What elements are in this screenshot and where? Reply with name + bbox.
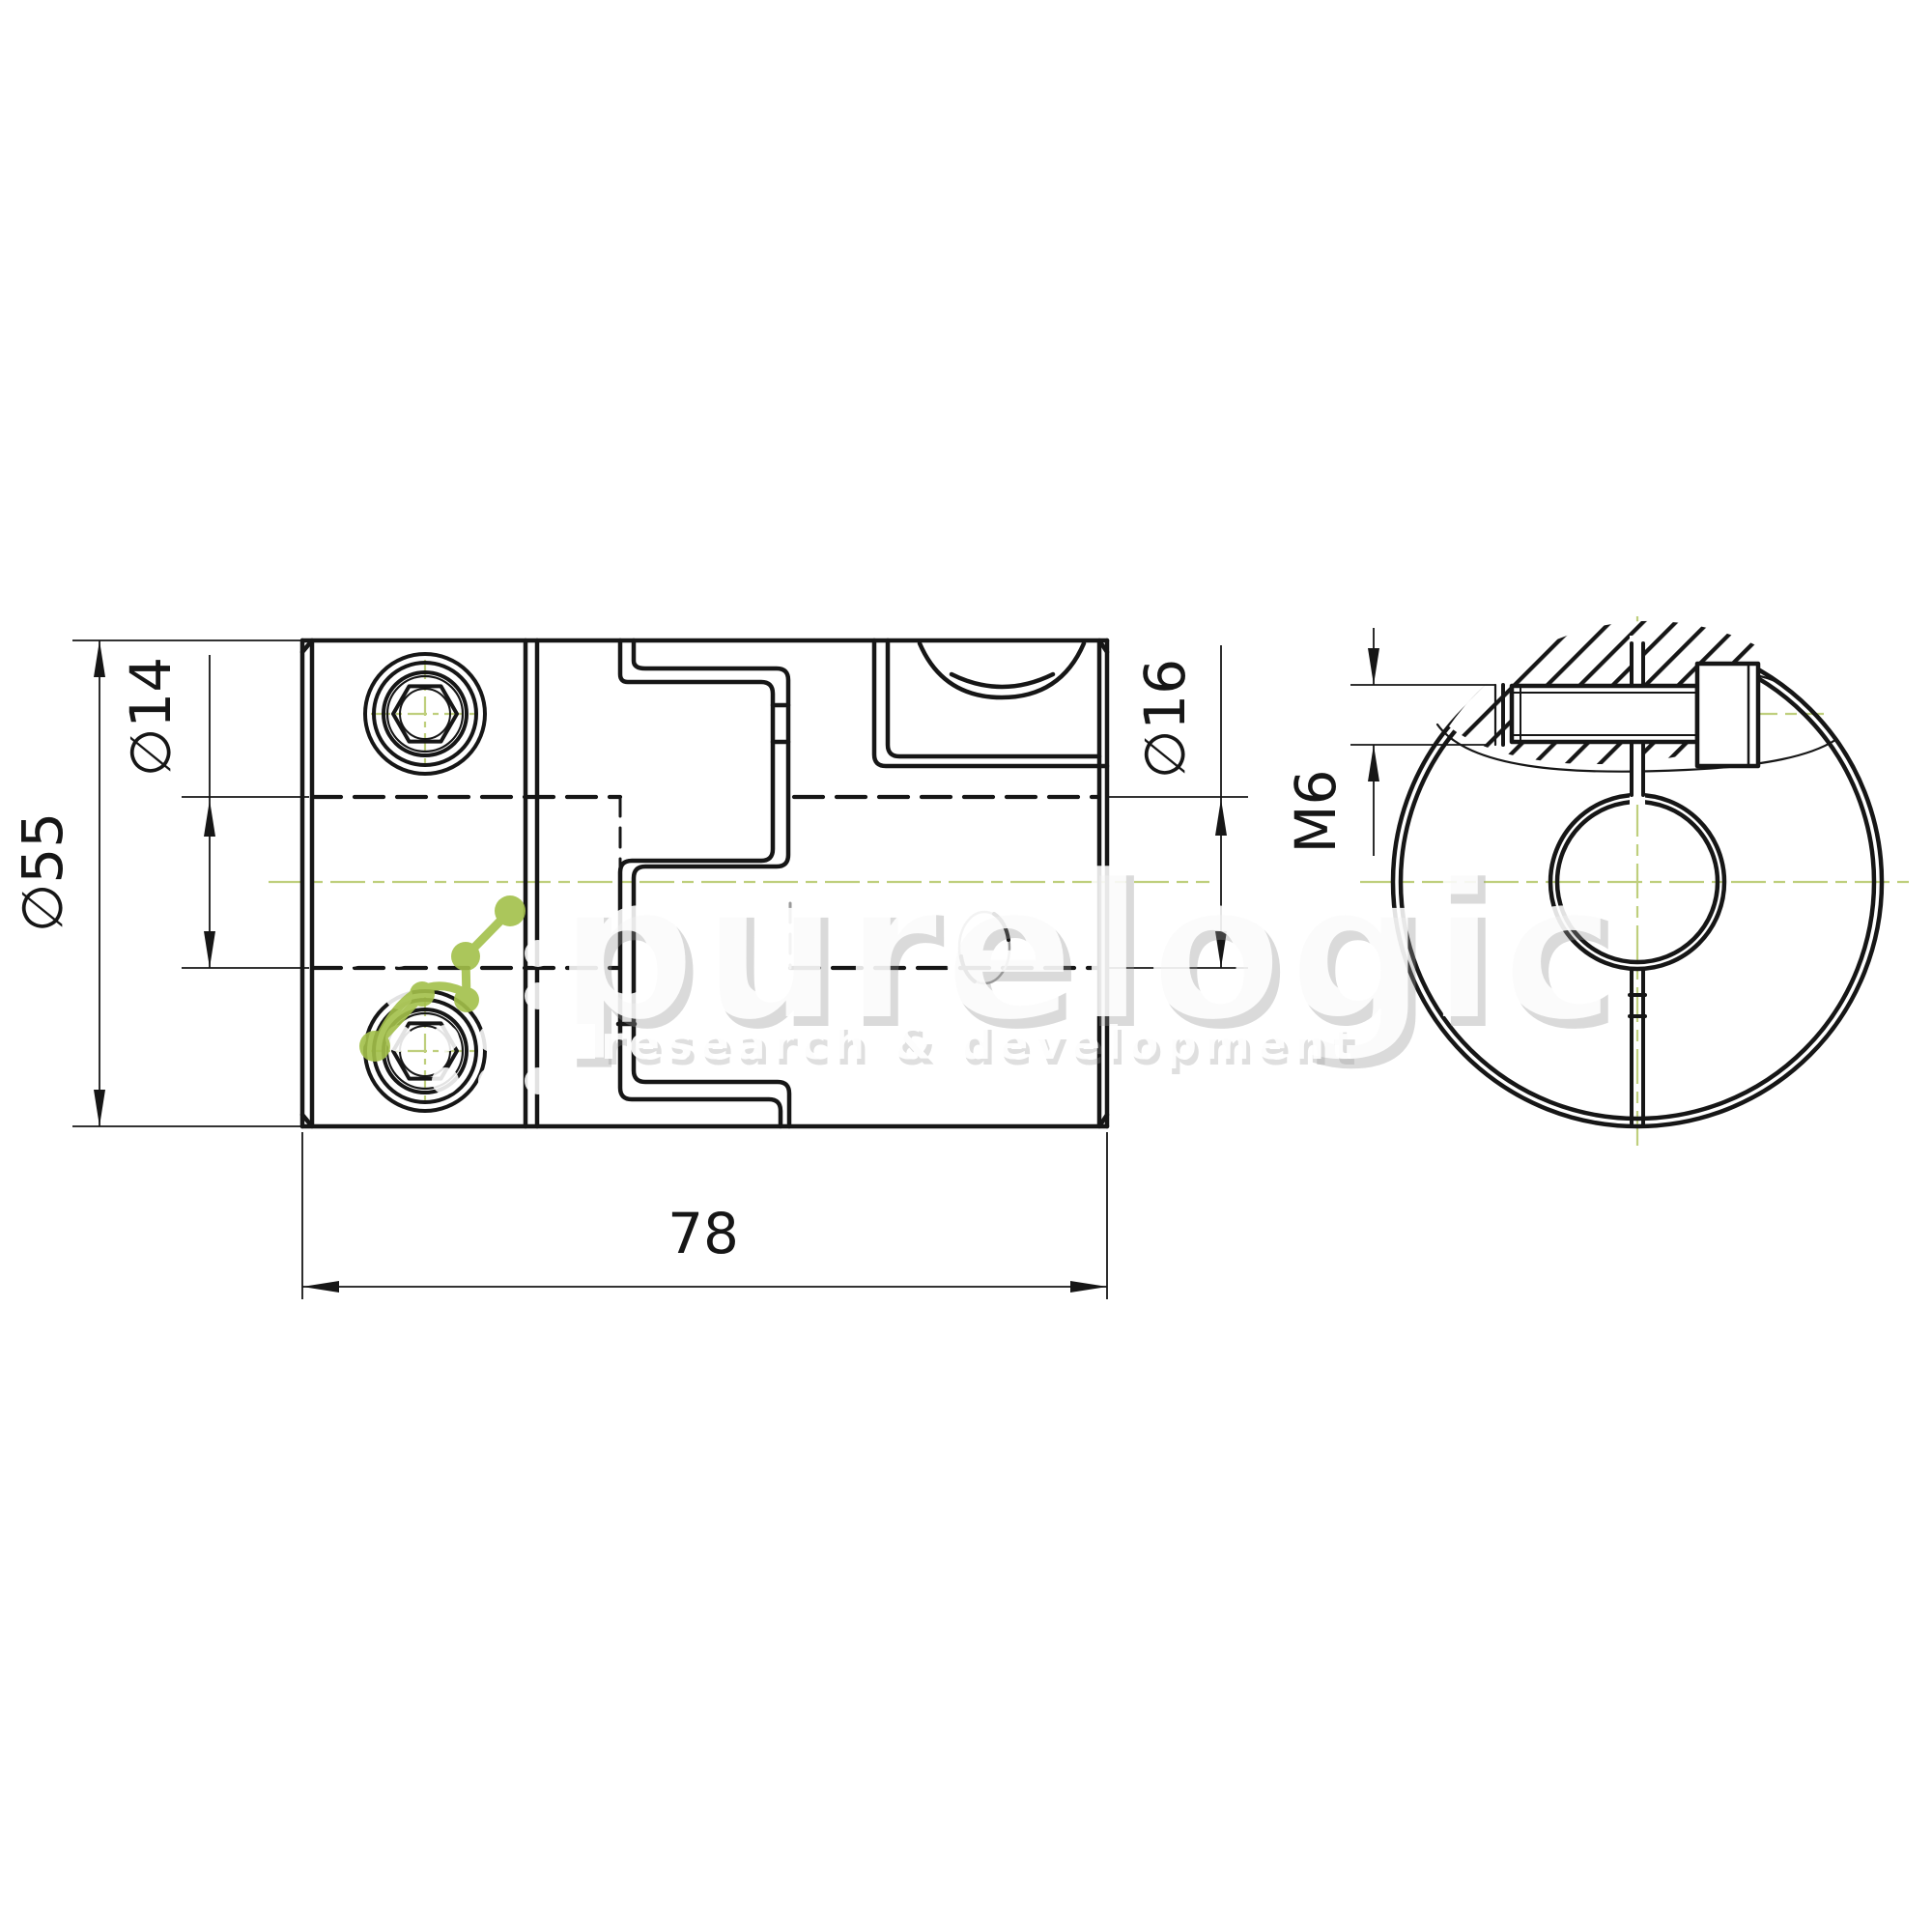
technical-drawing-svg: ∅55 ∅14 ∅16 78 M6 purelogic pur xyxy=(0,0,1932,1932)
watermark-subtitle: research & development xyxy=(601,1017,1358,1070)
watermark-text: purelogic purelogic research & developme… xyxy=(553,834,1623,1076)
watermark-bullet xyxy=(570,1024,595,1059)
dim-d55 xyxy=(72,640,302,1126)
label-d14: ∅14 xyxy=(118,657,184,777)
label-d16: ∅16 xyxy=(1132,659,1198,779)
watermark: purelogic purelogic research & developme… xyxy=(339,834,1623,1094)
label-78: 78 xyxy=(668,1201,739,1266)
dim-m6 xyxy=(1350,628,1495,856)
dim-d14 xyxy=(182,655,309,968)
drawing-canvas: ∅55 ∅14 ∅16 78 M6 purelogic pur xyxy=(0,0,1932,1932)
label-d55: ∅55 xyxy=(10,812,75,932)
setscrew-notch xyxy=(874,640,1107,766)
